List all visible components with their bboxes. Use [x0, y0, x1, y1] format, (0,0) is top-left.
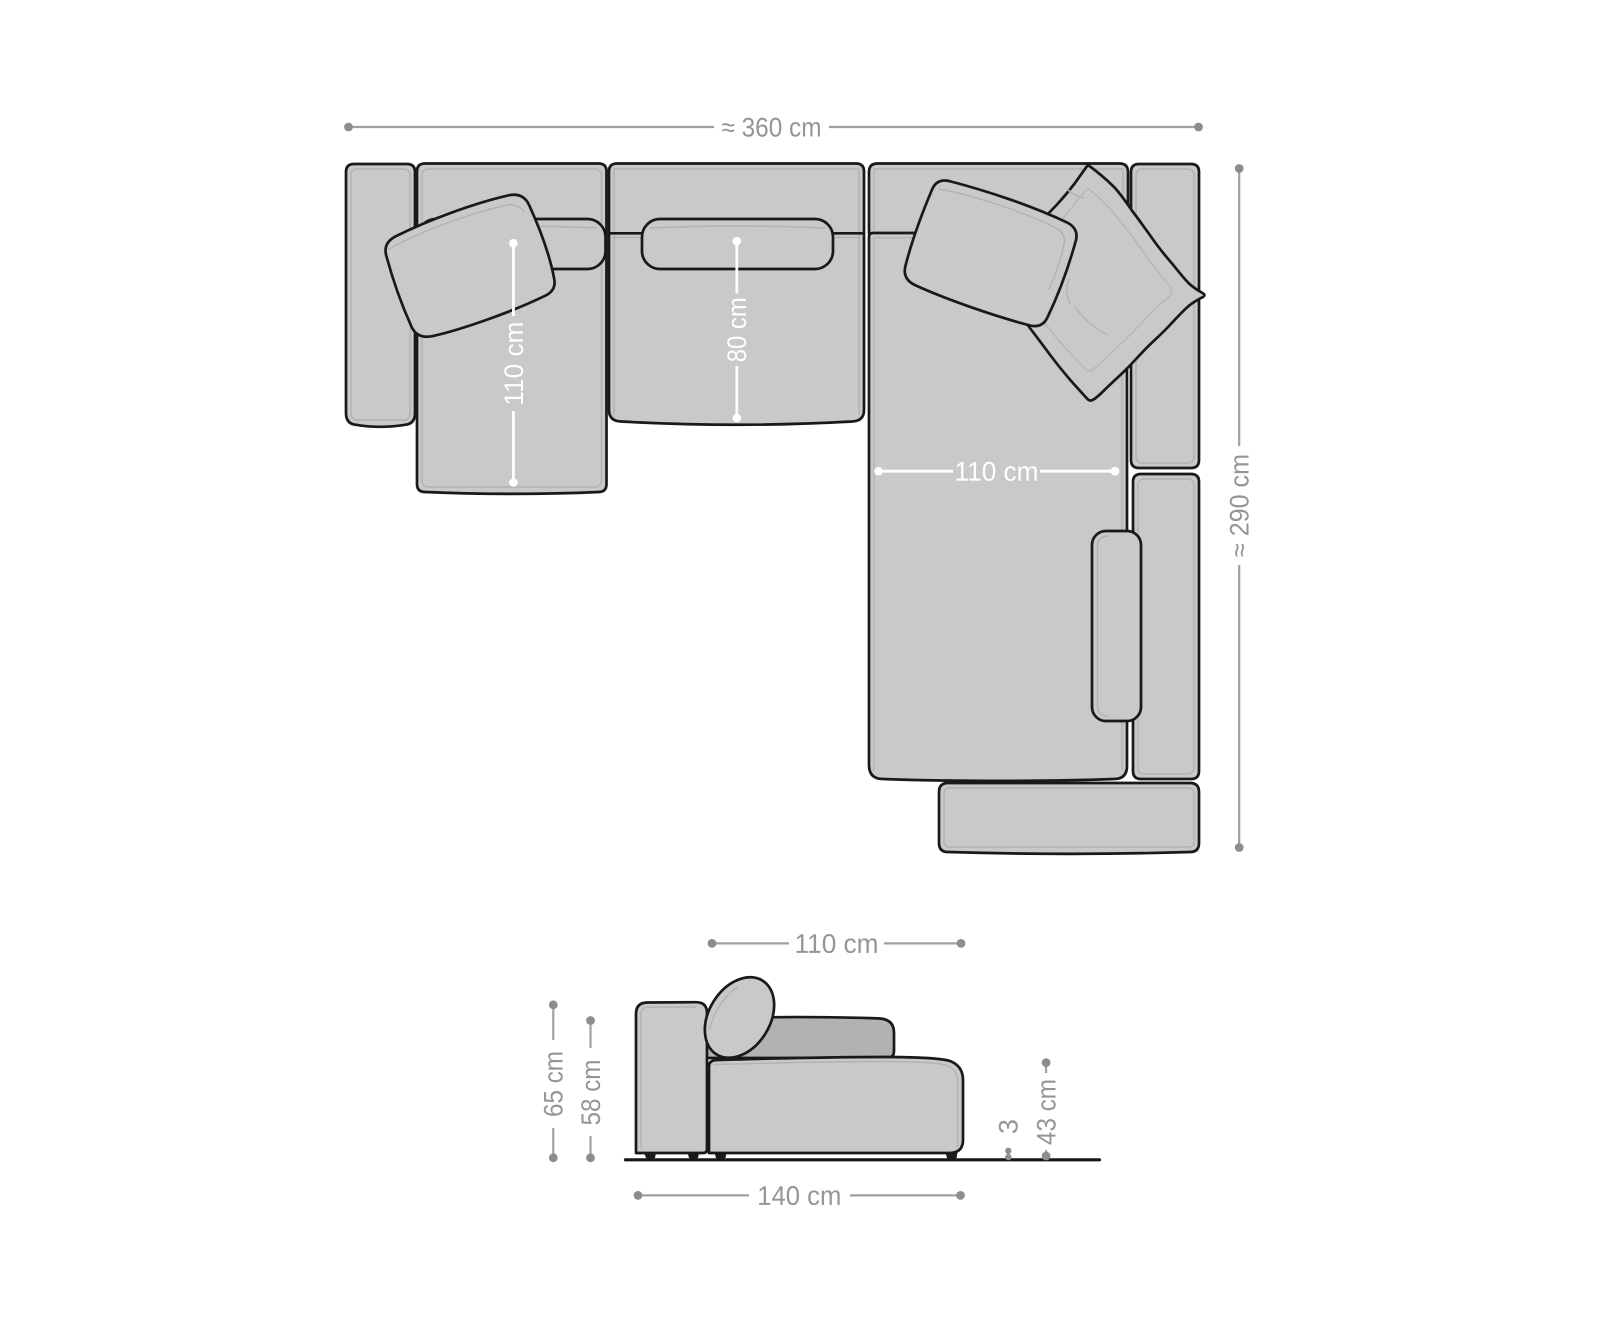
svg-text:110 cm: 110 cm	[499, 322, 529, 406]
svg-text:3: 3	[994, 1119, 1024, 1134]
svg-text:110 cm: 110 cm	[954, 457, 1038, 487]
svg-text:80 cm: 80 cm	[722, 297, 752, 362]
svg-text:≈ 360 cm: ≈ 360 cm	[721, 112, 821, 142]
svg-text:140 cm: 140 cm	[757, 1181, 841, 1211]
svg-text:58 cm: 58 cm	[576, 1060, 606, 1126]
svg-text:65 cm: 65 cm	[539, 1051, 569, 1117]
svg-text:≈ 290 cm: ≈ 290 cm	[1225, 454, 1255, 557]
svg-text:43 cm: 43 cm	[1032, 1079, 1062, 1145]
svg-text:110 cm: 110 cm	[794, 929, 878, 959]
